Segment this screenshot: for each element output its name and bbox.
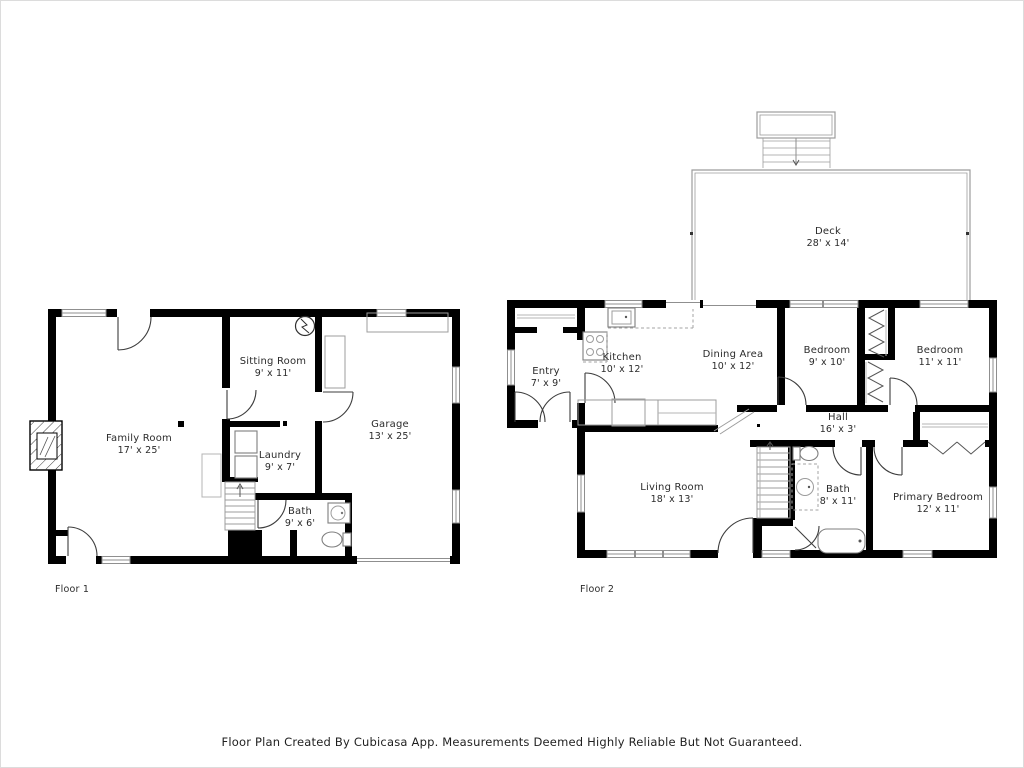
bedroom2-dims: 11' x 11'	[919, 357, 962, 368]
floor2-title: Floor 2	[580, 584, 614, 595]
kitchen-window	[605, 301, 642, 308]
hall-dims: 16' x 3'	[820, 424, 857, 435]
bedroom1-dims: 9' x 10'	[809, 357, 846, 368]
sitting-room-label: Sitting Room	[240, 356, 307, 367]
living-bottom-windows	[607, 551, 690, 558]
bath2-toilet	[793, 447, 818, 461]
fireplace	[30, 421, 62, 470]
water-heater-icon	[296, 317, 315, 336]
living-left-window	[578, 475, 585, 512]
floor-plan-canvas: Family Room 17' x 25' Sitting Room 9' x …	[0, 0, 1024, 768]
bedroom1-label: Bedroom	[804, 345, 851, 356]
support-column	[178, 421, 184, 427]
bath2-dims: 8' x 11'	[820, 496, 857, 507]
bath2-label: Bath	[826, 484, 850, 495]
entry-label: Entry	[532, 366, 560, 377]
stair-landing-window	[762, 551, 790, 558]
garage-label: Garage	[371, 419, 409, 430]
garage-dims: 13' x 25'	[369, 431, 412, 442]
kitchen-label: Kitchen	[603, 352, 642, 363]
laundry-dims: 9' x 7'	[265, 462, 295, 473]
entry-left-window	[508, 350, 515, 385]
bedroom1-window	[790, 301, 858, 308]
primary-right-window	[990, 487, 997, 518]
sitting-room-dims: 9' x 11'	[255, 368, 292, 379]
family-room-label: Family Room	[106, 433, 172, 444]
disclaimer-text: Floor Plan Created By Cubicasa App. Meas…	[222, 735, 803, 749]
floor1-title: Floor 1	[55, 584, 89, 595]
laundry-label: Laundry	[259, 450, 301, 461]
kitchen-sink	[608, 308, 635, 327]
bath2-tub	[818, 529, 865, 553]
living-dims: 18' x 13'	[651, 494, 694, 505]
bedroom2-right-window	[990, 358, 997, 392]
garage-right-window-1	[453, 367, 460, 403]
bedroom2-top-window	[920, 301, 968, 308]
bath1-dims: 9' x 6'	[285, 518, 315, 529]
garage-door-opening	[357, 556, 450, 564]
primary-bottom-window	[903, 551, 932, 558]
floor-plan-page: Family Room 17' x 25' Sitting Room 9' x …	[0, 0, 1024, 768]
family-room-dims: 17' x 25'	[118, 445, 161, 456]
living-label: Living Room	[640, 482, 704, 493]
family-room-top-window	[62, 310, 106, 317]
primary-label: Primary Bedroom	[893, 492, 983, 503]
entry-dims: 7' x 9'	[531, 378, 561, 389]
hall-label: Hall	[828, 412, 848, 423]
bath1-label: Bath	[288, 506, 312, 517]
dining-label: Dining Area	[703, 349, 764, 360]
dining-dims: 10' x 12'	[712, 361, 755, 372]
dining-slider-door	[666, 300, 756, 308]
kitchen-dims: 10' x 12'	[601, 364, 644, 375]
deck-label: Deck	[815, 226, 841, 237]
family-room-bottom-window	[102, 557, 130, 564]
deck-dims: 28' x 14'	[807, 238, 850, 249]
bath1-sink	[328, 503, 350, 523]
bath1-toilet	[322, 532, 351, 547]
primary-dims: 12' x 11'	[917, 504, 960, 515]
garage-right-window-2	[453, 490, 460, 523]
bedroom2-label: Bedroom	[917, 345, 964, 356]
